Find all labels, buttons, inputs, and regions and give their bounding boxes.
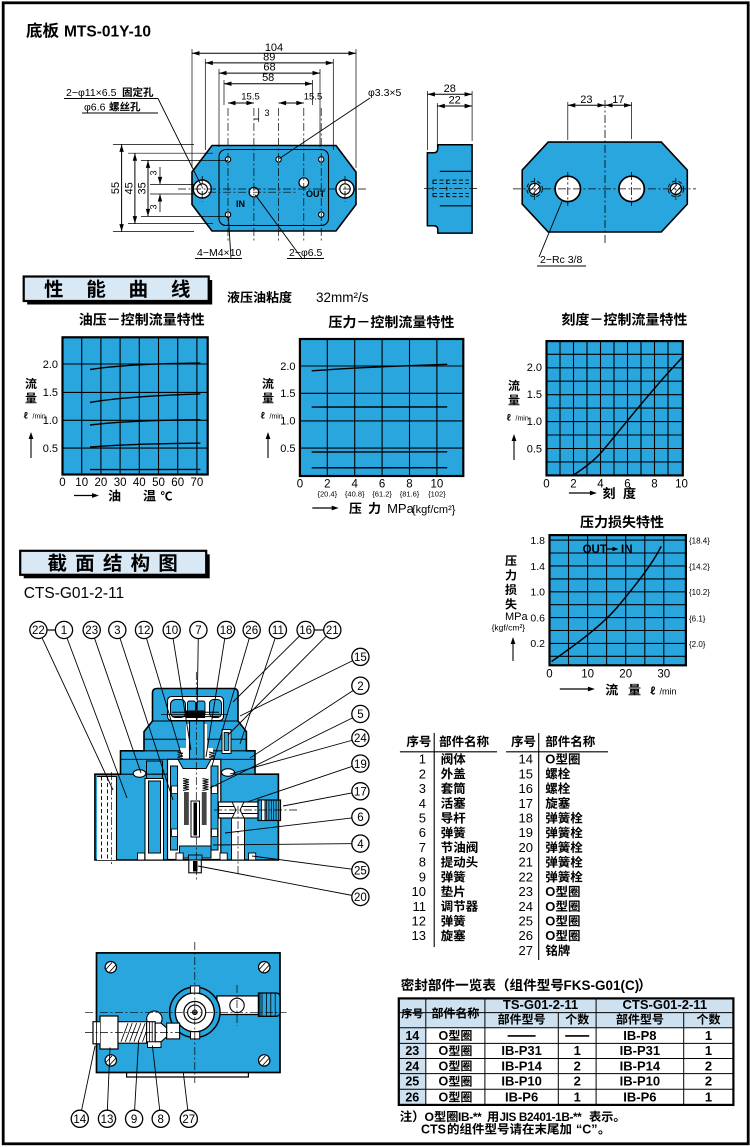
svg-text:IB-P14: IB-P14 xyxy=(620,1058,661,1073)
svg-text:23: 23 xyxy=(405,1044,419,1058)
svg-text:MTS-01Y-10: MTS-01Y-10 xyxy=(64,24,151,41)
svg-text:23: 23 xyxy=(85,625,98,637)
svg-text:22: 22 xyxy=(519,869,533,884)
svg-text:21: 21 xyxy=(519,855,533,870)
svg-text:MPa: MPa xyxy=(505,611,529,623)
svg-text:φ3.3×5: φ3.3×5 xyxy=(368,87,402,99)
svg-text:4−M4×10: 4−M4×10 xyxy=(197,247,242,259)
svg-text:8: 8 xyxy=(651,479,657,491)
svg-text:32mm²/s: 32mm²/s xyxy=(316,290,369,305)
svg-text:5: 5 xyxy=(419,811,426,826)
svg-text:6: 6 xyxy=(419,825,426,840)
svg-text:2: 2 xyxy=(705,1074,712,1089)
svg-text:O: O xyxy=(545,899,555,914)
svg-text:/min: /min xyxy=(33,414,46,421)
svg-text:2−Rc 3/8: 2−Rc 3/8 xyxy=(540,254,582,266)
svg-text:O: O xyxy=(439,1029,449,1043)
svg-text:1: 1 xyxy=(705,1043,712,1058)
svg-text:/min: /min xyxy=(270,414,283,421)
svg-text:CTS-G01-2-11: CTS-G01-2-11 xyxy=(24,585,125,602)
svg-text:O: O xyxy=(439,1059,449,1073)
svg-text:4: 4 xyxy=(419,796,426,811)
svg-text:45: 45 xyxy=(123,182,135,194)
svg-text:OUT: OUT xyxy=(306,189,326,199)
svg-text:O: O xyxy=(545,914,555,929)
svg-text:23: 23 xyxy=(580,94,592,106)
svg-text:2: 2 xyxy=(570,479,576,491)
svg-text:22: 22 xyxy=(32,625,45,637)
svg-text:O: O xyxy=(439,1090,449,1104)
svg-text:FKS-G01(C): FKS-G01(C) xyxy=(564,978,640,993)
svg-text:{102}: {102} xyxy=(428,490,446,499)
svg-text:/min: /min xyxy=(516,416,529,423)
svg-text:{81.6}: {81.6} xyxy=(400,490,420,499)
svg-text:IB-P6: IB-P6 xyxy=(623,1089,656,1104)
svg-text:14: 14 xyxy=(519,752,533,767)
svg-text:2: 2 xyxy=(705,1058,712,1073)
svg-text:58: 58 xyxy=(262,72,274,84)
svg-text:24: 24 xyxy=(519,899,533,914)
svg-text:28: 28 xyxy=(444,83,456,95)
svg-text:2.0: 2.0 xyxy=(43,359,58,371)
svg-text:CTS: CTS xyxy=(421,1123,446,1137)
svg-text:26: 26 xyxy=(519,928,533,943)
svg-text:27: 27 xyxy=(519,943,533,958)
svg-text:0.6: 0.6 xyxy=(530,613,545,625)
svg-text:OUT: OUT xyxy=(583,544,607,556)
svg-text:0.5: 0.5 xyxy=(280,443,295,455)
svg-text:10: 10 xyxy=(412,884,426,899)
svg-text:TS-G01-2-11: TS-G01-2-11 xyxy=(503,997,578,1012)
svg-text:3: 3 xyxy=(419,781,426,796)
svg-text:17: 17 xyxy=(612,94,624,106)
svg-text:20: 20 xyxy=(95,477,108,489)
svg-text:1.5: 1.5 xyxy=(43,387,58,399)
svg-text:25: 25 xyxy=(354,866,367,878)
svg-text:0: 0 xyxy=(59,477,65,489)
svg-text:19: 19 xyxy=(519,825,533,840)
svg-text:1: 1 xyxy=(705,1028,712,1043)
svg-text:1.0: 1.0 xyxy=(530,587,545,599)
svg-text:IB-P6: IB-P6 xyxy=(505,1089,538,1104)
svg-text:0: 0 xyxy=(297,479,303,491)
svg-text:60: 60 xyxy=(171,477,184,489)
svg-text:O: O xyxy=(545,928,555,943)
svg-text:2: 2 xyxy=(574,1074,581,1089)
svg-text:{10.2}: {10.2} xyxy=(689,588,710,597)
svg-text:25: 25 xyxy=(405,1075,419,1089)
svg-text:IN: IN xyxy=(621,544,633,556)
svg-text:{20.4}: {20.4} xyxy=(317,490,337,499)
svg-text:3: 3 xyxy=(264,108,269,118)
svg-text:40: 40 xyxy=(133,477,146,489)
svg-text:13: 13 xyxy=(101,1114,114,1126)
svg-text:10: 10 xyxy=(165,625,178,637)
svg-text:IB-P10: IB-P10 xyxy=(620,1074,660,1089)
svg-text:IB-P31: IB-P31 xyxy=(501,1043,541,1058)
svg-text:50: 50 xyxy=(152,477,165,489)
svg-text:8: 8 xyxy=(419,855,426,870)
svg-text:26: 26 xyxy=(405,1090,419,1104)
svg-text:3: 3 xyxy=(149,204,159,209)
svg-text:{kgf/cm²}: {kgf/cm²} xyxy=(492,623,526,633)
svg-text:22: 22 xyxy=(449,95,461,107)
svg-text:{61.2}: {61.2} xyxy=(372,490,392,499)
svg-text:IB-P31: IB-P31 xyxy=(620,1043,660,1058)
svg-text:24: 24 xyxy=(354,733,367,745)
svg-text:2.0: 2.0 xyxy=(527,362,542,374)
svg-text:20: 20 xyxy=(619,669,632,681)
svg-text:30: 30 xyxy=(114,477,127,489)
svg-text:1: 1 xyxy=(61,625,67,637)
svg-text:23: 23 xyxy=(519,884,533,899)
svg-text:70: 70 xyxy=(191,477,204,489)
svg-text:CTS-G01-2-11: CTS-G01-2-11 xyxy=(623,997,708,1012)
svg-text:20: 20 xyxy=(519,840,533,855)
svg-text:2: 2 xyxy=(574,1058,581,1073)
svg-text:4: 4 xyxy=(357,839,364,851)
svg-text:35: 35 xyxy=(137,182,149,194)
svg-text:17: 17 xyxy=(354,787,367,799)
svg-text:0: 0 xyxy=(543,479,549,491)
svg-text:{6.1}: {6.1} xyxy=(689,614,706,623)
svg-text:24: 24 xyxy=(405,1059,419,1073)
svg-text:11: 11 xyxy=(413,899,427,914)
svg-text:17: 17 xyxy=(519,796,533,811)
svg-text:20: 20 xyxy=(354,892,367,904)
svg-text:IB-P8: IB-P8 xyxy=(623,1028,656,1043)
svg-text:IB-P10: IB-P10 xyxy=(501,1074,541,1089)
svg-text:10: 10 xyxy=(581,669,594,681)
svg-text:55: 55 xyxy=(110,182,122,194)
svg-text:φ6.6: φ6.6 xyxy=(84,102,106,114)
svg-text:25: 25 xyxy=(519,914,533,929)
svg-text:IN: IN xyxy=(236,199,245,209)
svg-text:6: 6 xyxy=(357,812,363,824)
svg-text:19: 19 xyxy=(354,759,367,771)
svg-text:{18.4}: {18.4} xyxy=(689,537,710,546)
svg-text:16: 16 xyxy=(299,625,312,637)
svg-text:15: 15 xyxy=(519,766,533,781)
svg-text:30: 30 xyxy=(657,669,670,681)
svg-text:0.5: 0.5 xyxy=(527,443,542,455)
svg-text:2−φ11×6.5: 2−φ11×6.5 xyxy=(66,87,117,99)
svg-text:10: 10 xyxy=(75,477,88,489)
svg-text:0: 0 xyxy=(546,669,552,681)
svg-text:2−φ6.5: 2−φ6.5 xyxy=(289,247,323,259)
svg-text:12: 12 xyxy=(412,914,426,929)
svg-text:10: 10 xyxy=(675,479,688,491)
svg-text:9: 9 xyxy=(131,1114,137,1126)
svg-text:1.0: 1.0 xyxy=(527,416,542,428)
svg-text:1: 1 xyxy=(419,752,426,767)
svg-text:1: 1 xyxy=(705,1089,712,1104)
svg-text:26: 26 xyxy=(245,625,258,637)
svg-text:IB-P14: IB-P14 xyxy=(501,1058,542,1073)
svg-text:3: 3 xyxy=(149,170,159,175)
svg-text:13: 13 xyxy=(412,928,426,943)
svg-text:{40.8}: {40.8} xyxy=(345,490,365,499)
svg-text:21: 21 xyxy=(326,625,339,637)
svg-text:1: 1 xyxy=(574,1089,581,1104)
svg-text:{2.0}: {2.0} xyxy=(689,640,706,649)
svg-text:8: 8 xyxy=(157,1114,163,1126)
svg-text:1.8: 1.8 xyxy=(530,535,545,547)
svg-text:O: O xyxy=(545,884,555,899)
svg-text:/min: /min xyxy=(660,687,677,697)
svg-text:JIS B2401-1B-**: JIS B2401-1B-** xyxy=(500,1110,583,1124)
svg-text:0.2: 0.2 xyxy=(530,638,545,650)
svg-text:O: O xyxy=(545,752,555,767)
svg-text:7: 7 xyxy=(419,840,426,855)
svg-text:5: 5 xyxy=(357,709,363,721)
svg-text:15.5: 15.5 xyxy=(304,92,323,103)
svg-text:{14.2}: {14.2} xyxy=(689,563,710,572)
svg-text:IB-**: IB-** xyxy=(458,1110,482,1124)
svg-text:3: 3 xyxy=(114,625,120,637)
svg-text:2.0: 2.0 xyxy=(280,361,295,373)
svg-text:18: 18 xyxy=(220,625,233,637)
svg-text:15.5: 15.5 xyxy=(241,92,260,103)
svg-text:7: 7 xyxy=(195,625,201,637)
svg-text:2: 2 xyxy=(419,766,426,781)
svg-text:MPa: MPa xyxy=(387,501,415,516)
svg-text:15: 15 xyxy=(354,652,367,664)
svg-text:12: 12 xyxy=(138,625,151,637)
svg-text:O: O xyxy=(439,1044,449,1058)
svg-text:1.5: 1.5 xyxy=(527,389,542,401)
svg-text:27: 27 xyxy=(182,1114,195,1126)
svg-text:18: 18 xyxy=(519,811,533,826)
svg-text:0.5: 0.5 xyxy=(43,443,58,455)
svg-text:O: O xyxy=(439,1075,449,1089)
svg-text:“C”: “C” xyxy=(576,1123,598,1137)
svg-text:14: 14 xyxy=(73,1114,86,1126)
svg-text:{kgf/cm²}: {kgf/cm²} xyxy=(412,504,456,516)
svg-text:16: 16 xyxy=(519,781,533,796)
svg-text:9: 9 xyxy=(419,869,426,884)
svg-text:11: 11 xyxy=(272,625,284,637)
svg-text:1.4: 1.4 xyxy=(530,561,545,573)
svg-text:14: 14 xyxy=(405,1029,419,1043)
svg-text:1: 1 xyxy=(574,1043,581,1058)
svg-text:2: 2 xyxy=(357,681,363,693)
svg-text:1.5: 1.5 xyxy=(280,388,295,400)
